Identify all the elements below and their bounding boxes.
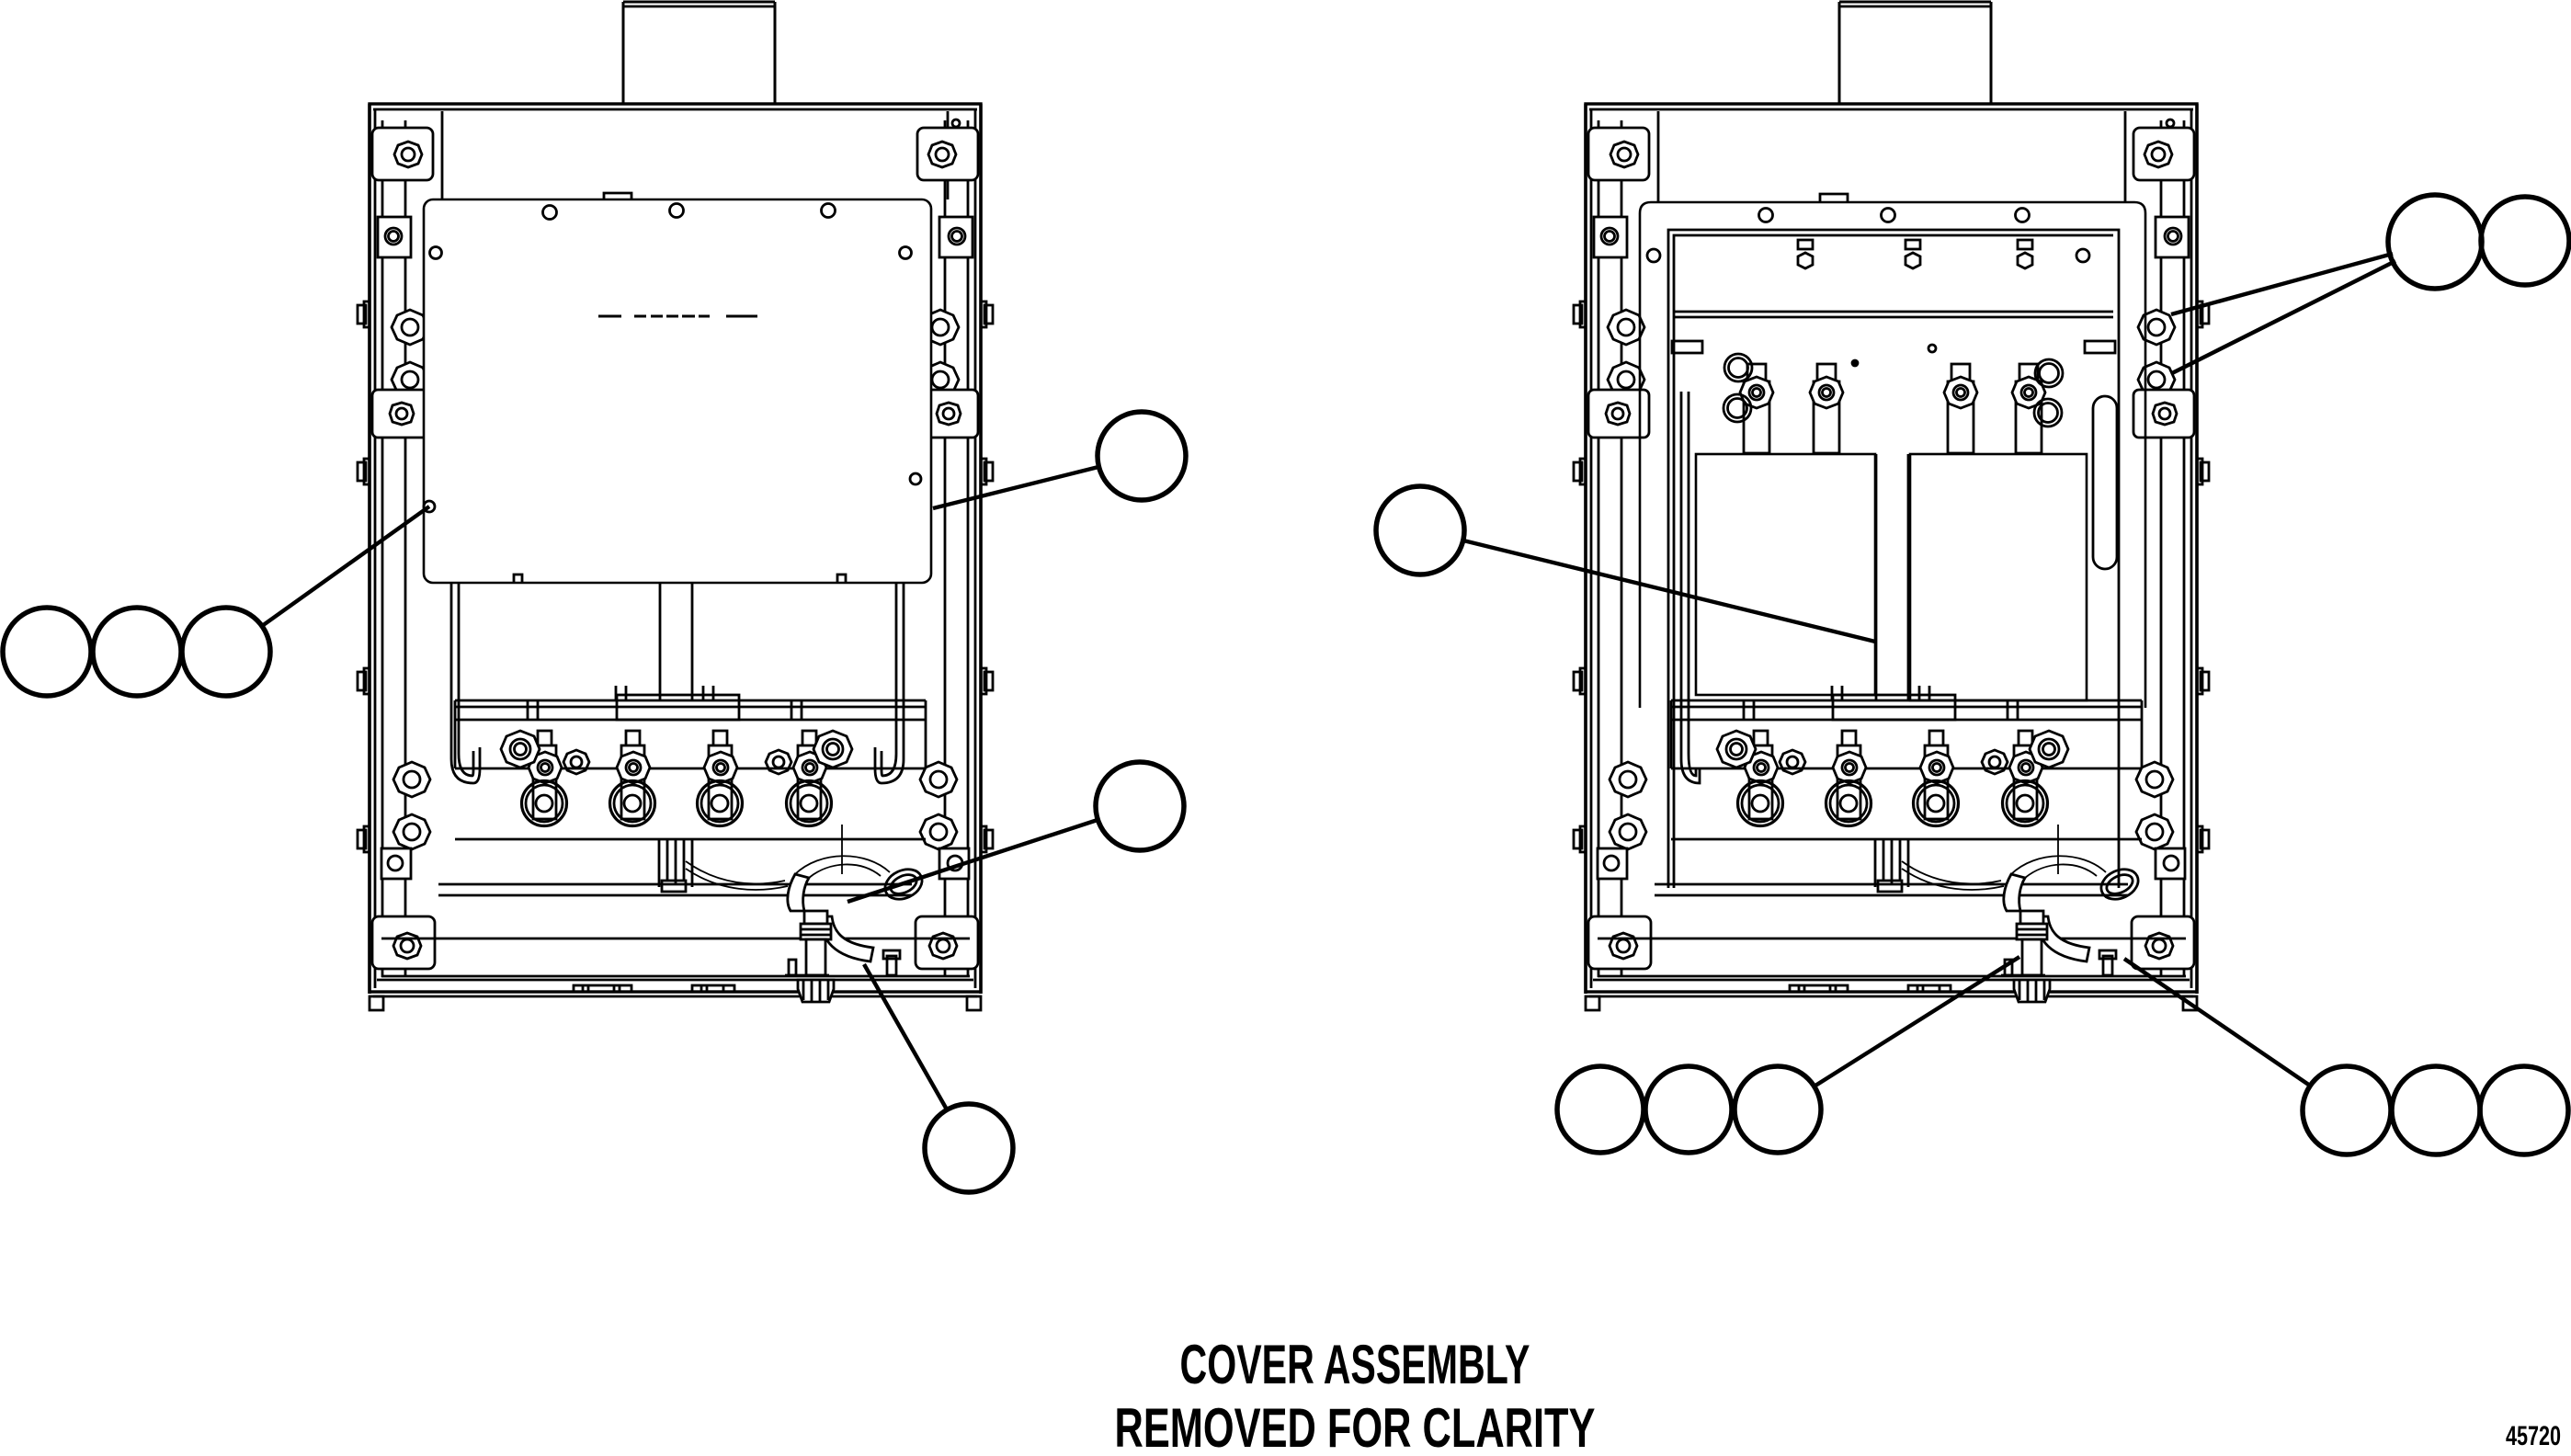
svg-text:45720: 45720 — [2506, 1421, 2561, 1451]
svg-text:COVER ASSEMBLY: COVER ASSEMBLY — [1180, 1334, 1530, 1395]
svg-text:REMOVED FOR CLARITY: REMOVED FOR CLARITY — [1115, 1397, 1596, 1456]
